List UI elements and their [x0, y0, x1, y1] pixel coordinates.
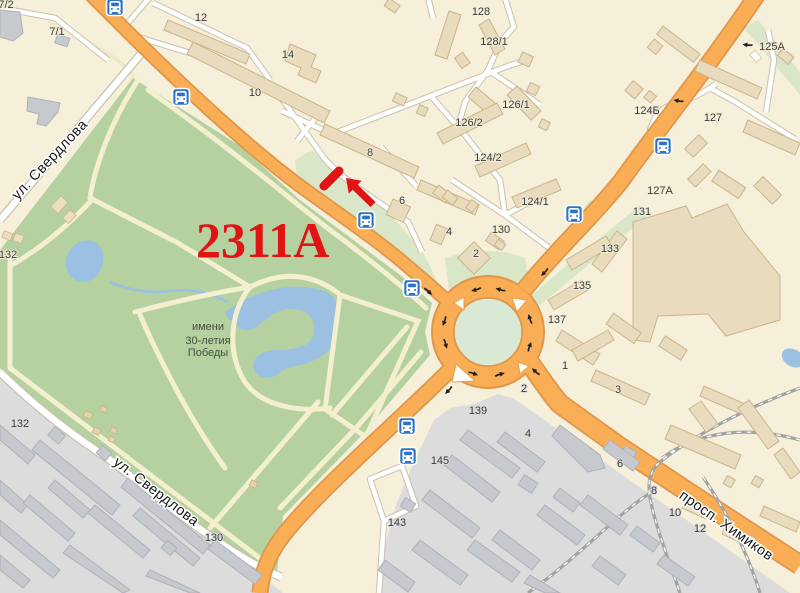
svg-text:6: 6: [617, 458, 623, 470]
svg-text:1: 1: [562, 360, 568, 372]
svg-text:12: 12: [694, 523, 706, 535]
svg-text:7/2: 7/2: [0, 0, 14, 11]
svg-text:125А: 125А: [759, 41, 785, 53]
svg-text:130: 130: [205, 532, 223, 544]
svg-text:10: 10: [669, 507, 681, 519]
svg-text:145: 145: [431, 455, 449, 467]
svg-text:имени: имени: [192, 321, 224, 333]
svg-text:137: 137: [548, 314, 566, 326]
svg-text:10: 10: [249, 87, 261, 99]
svg-text:133: 133: [601, 243, 619, 255]
svg-text:2: 2: [473, 248, 479, 260]
svg-text:Победы: Победы: [188, 347, 228, 359]
svg-text:139: 139: [469, 405, 487, 417]
svg-text:128/1: 128/1: [480, 36, 508, 48]
svg-text:124Б: 124Б: [634, 105, 660, 117]
svg-text:4: 4: [446, 226, 452, 238]
svg-text:6: 6: [399, 195, 405, 207]
svg-text:135: 135: [573, 280, 591, 292]
svg-text:7/1: 7/1: [49, 26, 64, 38]
svg-text:124/1: 124/1: [521, 196, 549, 208]
svg-text:12: 12: [195, 12, 207, 24]
svg-text:124/2: 124/2: [474, 152, 502, 164]
svg-text:8: 8: [367, 147, 373, 159]
svg-text:132: 132: [11, 418, 29, 430]
svg-text:8: 8: [651, 485, 657, 497]
svg-text:2311A: 2311A: [196, 212, 329, 268]
svg-text:2: 2: [521, 383, 527, 395]
svg-text:131: 131: [633, 206, 651, 218]
svg-text:4: 4: [525, 428, 531, 440]
svg-text:30-летия: 30-летия: [185, 335, 230, 347]
svg-text:126/1: 126/1: [502, 99, 530, 111]
svg-text:130: 130: [492, 224, 510, 236]
svg-text:128: 128: [472, 6, 490, 18]
svg-text:127: 127: [704, 112, 722, 124]
svg-text:14: 14: [282, 49, 294, 61]
svg-text:127А: 127А: [647, 185, 673, 197]
svg-text:126/2: 126/2: [455, 117, 483, 129]
svg-text:143: 143: [388, 517, 406, 529]
svg-text:132: 132: [0, 249, 17, 261]
svg-text:3: 3: [615, 384, 621, 396]
